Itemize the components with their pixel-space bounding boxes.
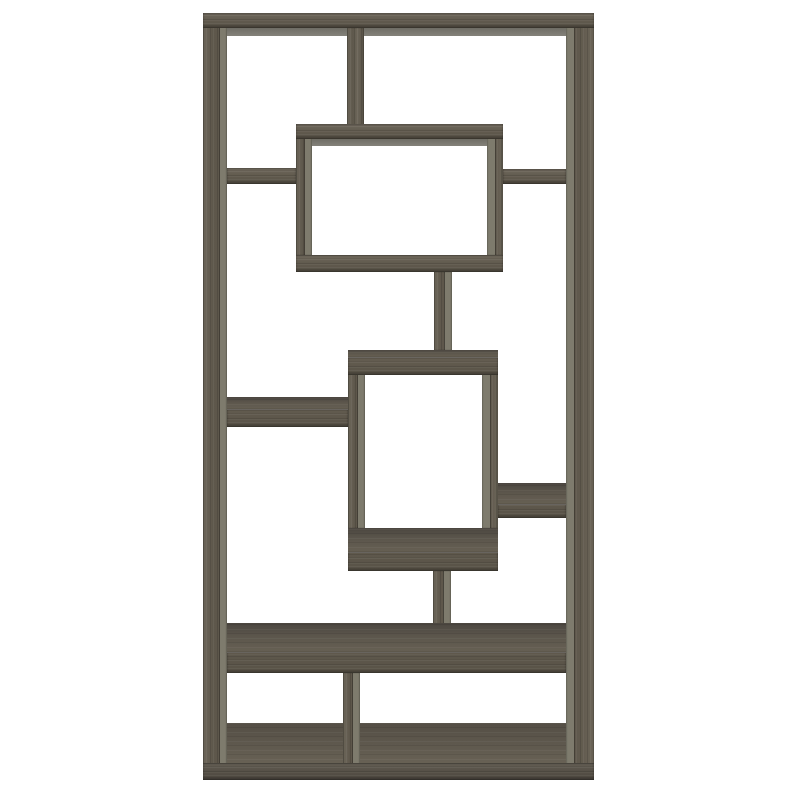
middle-box-left-wall <box>348 372 365 528</box>
upper-left-shelf <box>227 168 296 184</box>
top-board-underside <box>227 28 566 36</box>
upper-middle-connector <box>434 272 452 350</box>
upper-box-right-wall <box>487 138 503 255</box>
upper-box-bottom-board <box>296 255 503 272</box>
top-center-divider <box>347 28 364 125</box>
upper-box-left-wall <box>296 138 312 255</box>
bottom-divider <box>343 673 360 764</box>
upper-right-shelf <box>503 169 566 184</box>
bookcase-product-photo <box>0 0 800 800</box>
middle-box-top-board <box>348 350 498 375</box>
middle-box-bottom-board <box>348 528 498 571</box>
right-post <box>566 13 594 765</box>
lower-middle-connector <box>433 571 451 625</box>
left-post <box>203 13 227 765</box>
base-front-board <box>203 763 594 780</box>
wide-lower-shelf-top-face <box>227 623 566 653</box>
left-long-shelf <box>227 397 348 427</box>
right-small-shelf <box>498 483 566 518</box>
middle-box-top-board-top-face <box>348 350 498 358</box>
upper-box-top-board <box>296 124 503 139</box>
top-board <box>203 13 594 28</box>
middle-box-right-wall <box>482 372 498 528</box>
right-small-shelf-top-face <box>498 483 566 505</box>
upper-box-top-underside <box>312 139 487 146</box>
left-long-shelf-top-face <box>227 397 348 410</box>
wide-lower-shelf <box>227 623 566 673</box>
base-interior-floor <box>227 723 566 764</box>
middle-box-bottom-board-top-face <box>348 528 498 553</box>
